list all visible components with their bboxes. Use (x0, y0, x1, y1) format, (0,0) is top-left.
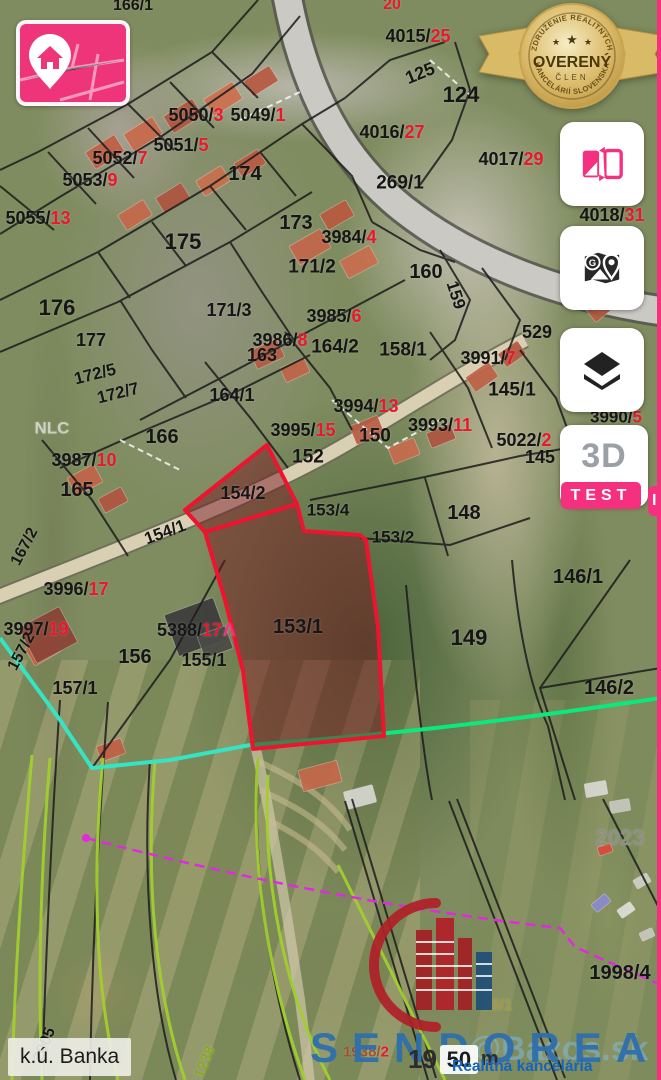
building (617, 901, 636, 918)
cadastral-area-label: k.ú. Banka (8, 1038, 131, 1076)
verified-member-badge: ZDRUŽENIE REALITNÝCH KANCELÁRIÍ SLOVENSK… (477, 0, 661, 123)
svg-text:G: G (589, 258, 596, 269)
parcel-153-1-polygon (205, 504, 384, 749)
building (426, 424, 456, 449)
building (584, 780, 608, 798)
building (244, 65, 279, 96)
cadastral-map-app: 5050/35049/15051/55052/75053/95055/13401… (0, 0, 661, 1080)
app-logo-button[interactable] (16, 20, 130, 106)
compare-flip-icon (579, 144, 625, 184)
building (298, 760, 342, 792)
map-pin-logo-icon (20, 24, 126, 102)
google-maps-button[interactable]: G (560, 226, 644, 310)
layers-icon (580, 350, 624, 390)
badge-title: OVERENÝ (533, 52, 612, 71)
building (280, 357, 310, 382)
building (597, 843, 613, 856)
badge-subtitle: ČLEN (555, 73, 588, 82)
building (388, 437, 421, 464)
right-edge-accent-strip (657, 0, 661, 1080)
badge-star-left: ★ (552, 37, 560, 47)
google-maps-icon: G (579, 247, 625, 289)
building (85, 135, 124, 170)
building (609, 798, 631, 813)
building (163, 99, 202, 134)
badge-star-center: ★ (566, 32, 578, 47)
three-d-label: 3D (581, 437, 626, 476)
sendoreal-tagline: Realitná kancelária (452, 1058, 592, 1076)
compare-view-button[interactable] (560, 122, 644, 206)
building (203, 82, 242, 117)
layers-button[interactable] (560, 328, 644, 412)
building (591, 893, 611, 912)
badge-star-right: ★ (584, 37, 592, 47)
building (98, 487, 128, 513)
building (289, 228, 331, 265)
scale-prefix: 19 (408, 1044, 437, 1075)
test-mode-button[interactable]: TEST (561, 482, 641, 509)
building (18, 607, 77, 664)
building (118, 199, 153, 230)
building (639, 927, 655, 941)
building (320, 200, 355, 231)
building (339, 245, 378, 279)
building (343, 784, 377, 809)
